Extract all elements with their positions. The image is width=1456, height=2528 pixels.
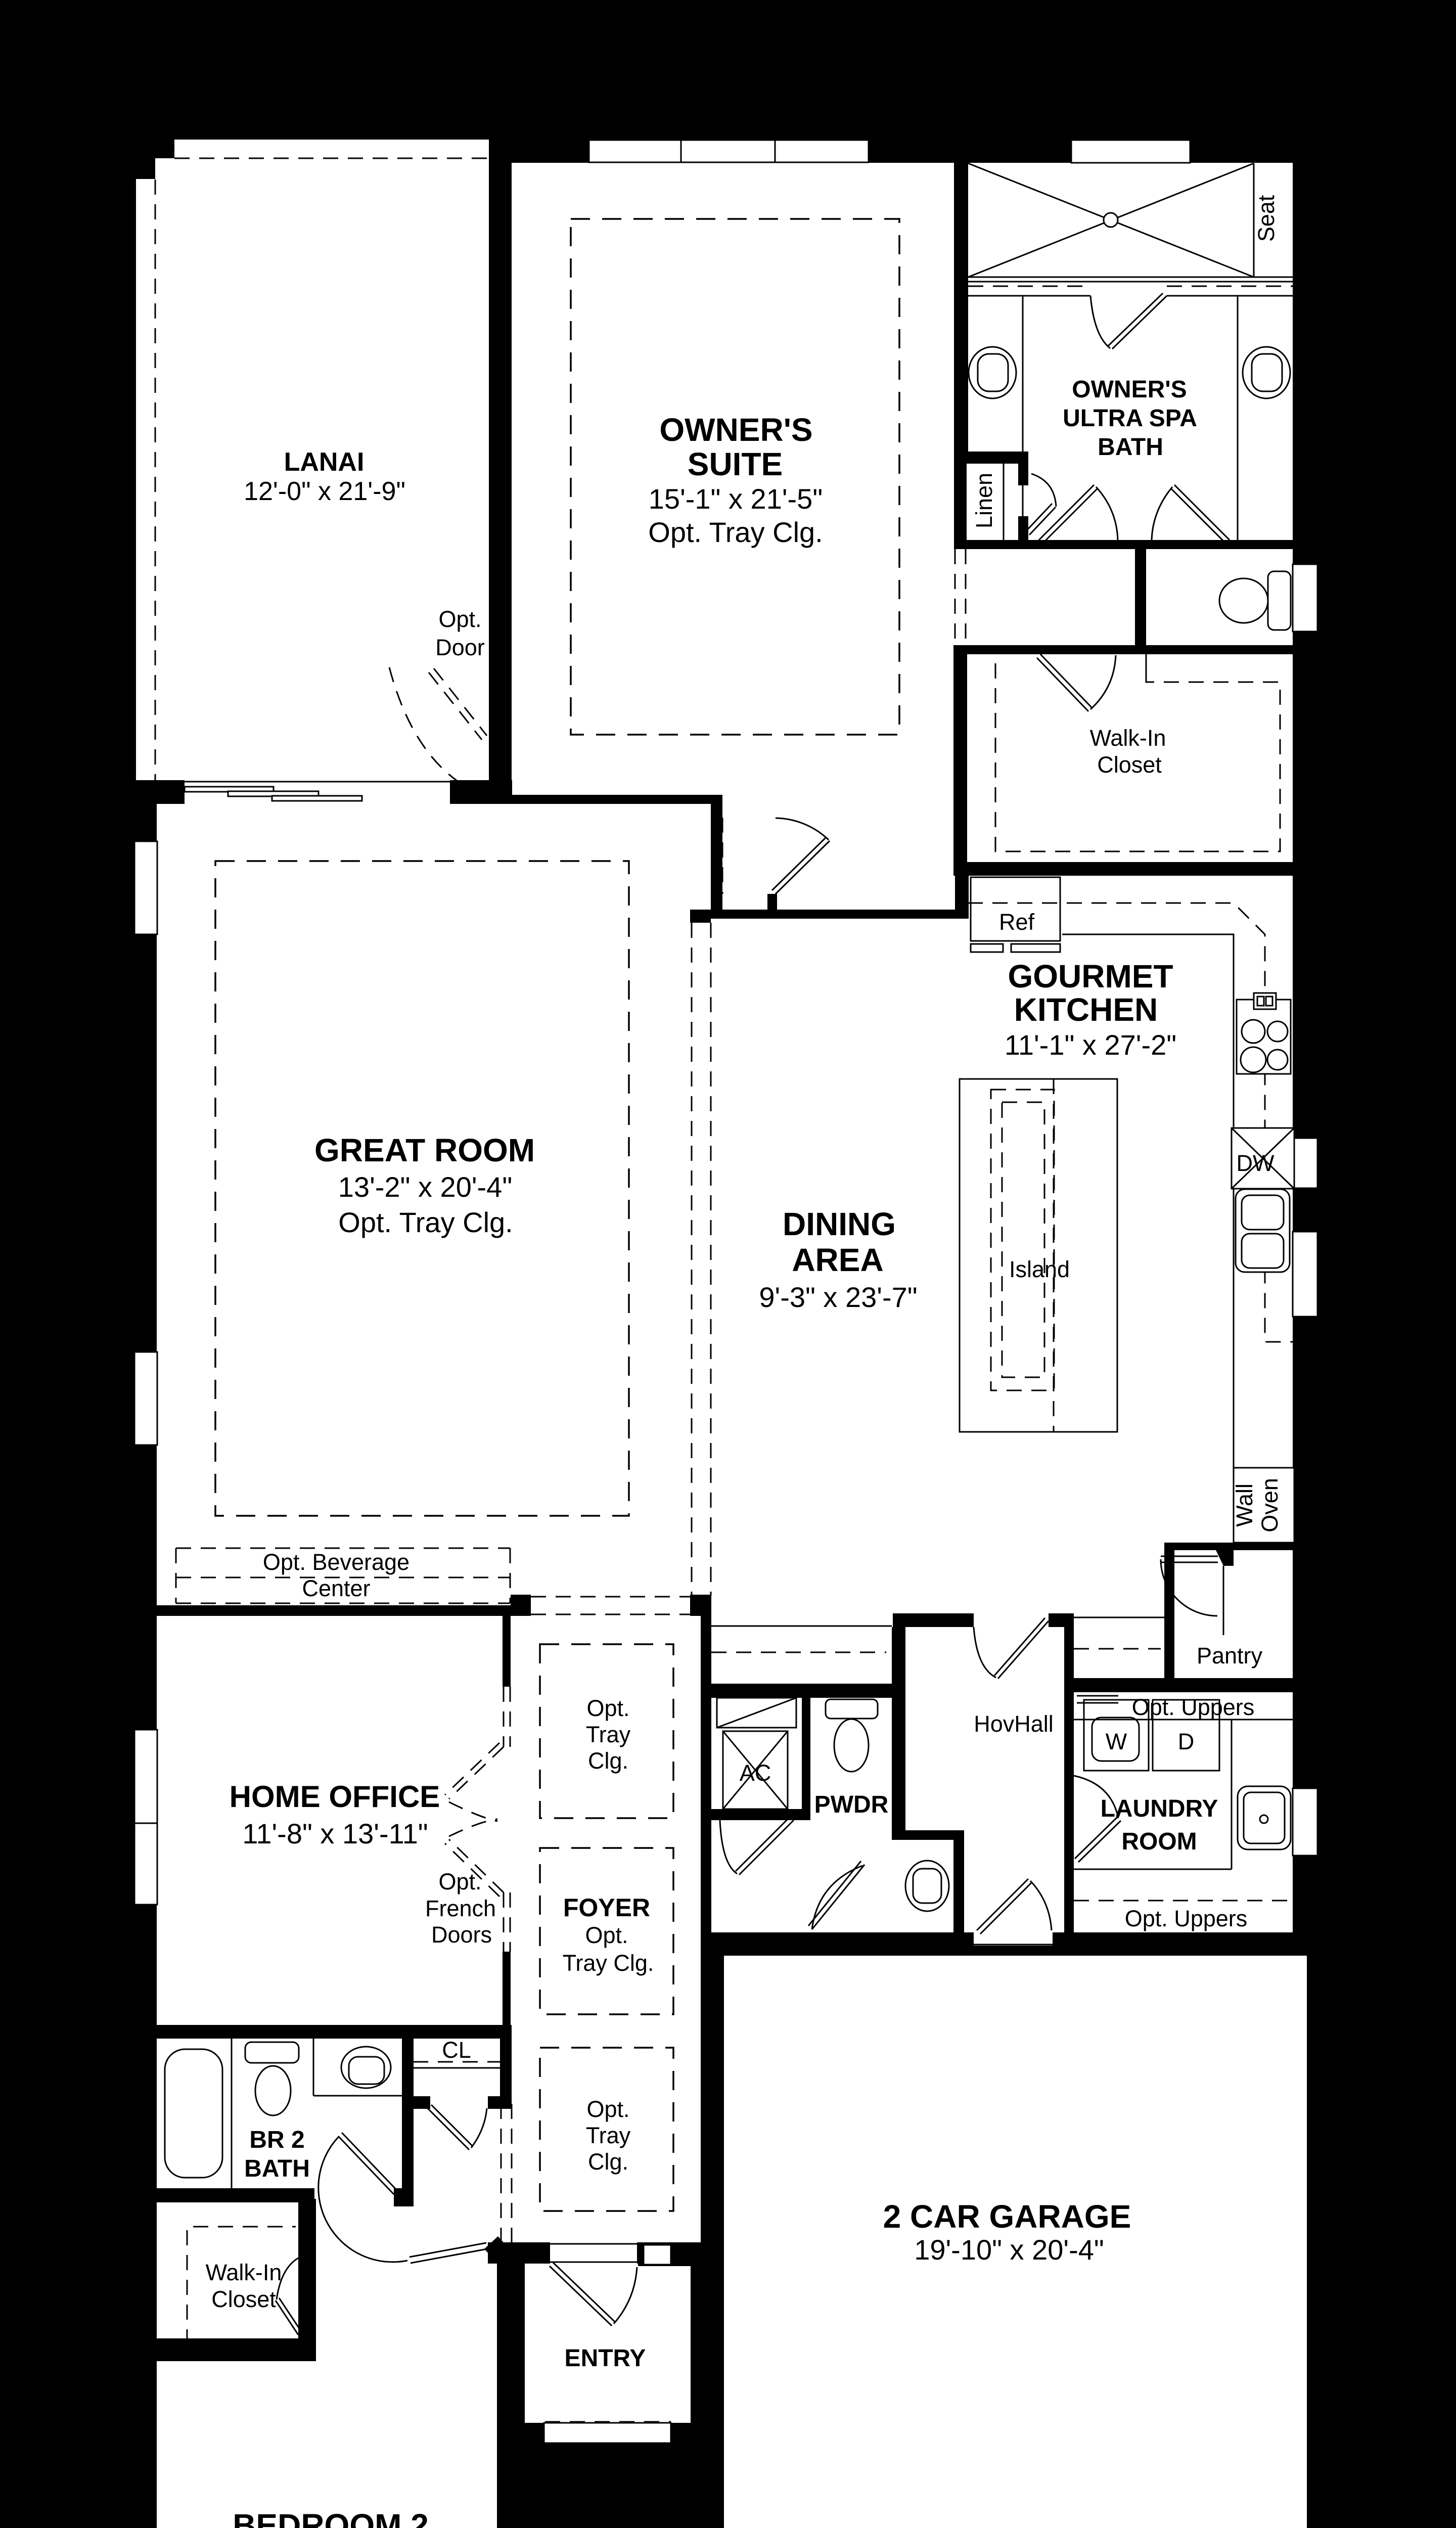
svg-text:9'-3" x 23'-7": 9'-3" x 23'-7" bbox=[759, 1281, 917, 1313]
svg-text:HovHall: HovHall bbox=[974, 1711, 1054, 1737]
svg-text:Island: Island bbox=[1009, 1256, 1070, 1282]
svg-text:Opt. Tray Clg.: Opt. Tray Clg. bbox=[338, 1206, 513, 1238]
svg-text:Linen: Linen bbox=[971, 473, 997, 528]
svg-text:Clg.: Clg. bbox=[588, 2149, 628, 2175]
svg-text:HOME OFFICE: HOME OFFICE bbox=[230, 1780, 440, 1814]
svg-text:Center: Center bbox=[302, 1575, 370, 1601]
svg-text:BEDROOM 2: BEDROOM 2 bbox=[233, 2507, 429, 2528]
svg-text:Tray: Tray bbox=[586, 1722, 631, 1747]
svg-text:Oven: Oven bbox=[1257, 1478, 1283, 1532]
svg-text:Tray Clg.: Tray Clg. bbox=[563, 1950, 654, 1976]
svg-text:Closet: Closet bbox=[211, 2286, 276, 2312]
svg-text:LAUNDRY: LAUNDRY bbox=[1101, 1795, 1218, 1822]
svg-text:19'-10" x 20'-4": 19'-10" x 20'-4" bbox=[914, 2234, 1104, 2266]
svg-text:French: French bbox=[425, 1895, 496, 1921]
svg-text:Walk-In: Walk-In bbox=[206, 2260, 282, 2285]
svg-text:OWNER'S: OWNER'S bbox=[659, 412, 812, 448]
svg-text:Opt.: Opt. bbox=[438, 606, 481, 632]
svg-text:AC: AC bbox=[740, 1760, 771, 1786]
svg-text:15'-1" x 21'-5": 15'-1" x 21'-5" bbox=[649, 483, 823, 515]
svg-text:ROOM: ROOM bbox=[1121, 1828, 1197, 1855]
svg-text:GREAT ROOM: GREAT ROOM bbox=[314, 1132, 535, 1168]
svg-text:Opt. Uppers: Opt. Uppers bbox=[1132, 1694, 1255, 1720]
svg-text:FOYER: FOYER bbox=[563, 1893, 650, 1922]
svg-text:Opt.: Opt. bbox=[438, 1869, 481, 1894]
svg-text:D: D bbox=[1178, 1729, 1195, 1754]
svg-text:BATH: BATH bbox=[1098, 434, 1163, 461]
svg-text:ULTRA SPA: ULTRA SPA bbox=[1063, 405, 1197, 432]
svg-text:Opt. Uppers: Opt. Uppers bbox=[1125, 1906, 1248, 1931]
svg-text:11'-8" x 13'-11": 11'-8" x 13'-11" bbox=[242, 1818, 428, 1849]
svg-text:Opt.: Opt. bbox=[586, 1695, 629, 1721]
svg-text:12'-0" x 21'-9": 12'-0" x 21'-9" bbox=[244, 477, 405, 506]
svg-text:OWNER'S: OWNER'S bbox=[1072, 376, 1187, 403]
svg-text:AREA: AREA bbox=[792, 1242, 883, 1278]
svg-text:PWDR: PWDR bbox=[814, 1791, 889, 1818]
svg-text:2 CAR GARAGE: 2 CAR GARAGE bbox=[883, 2198, 1131, 2235]
svg-text:CL: CL bbox=[442, 2037, 471, 2063]
svg-text:GOURMET: GOURMET bbox=[1008, 958, 1173, 995]
svg-text:DW: DW bbox=[1237, 1150, 1275, 1176]
svg-text:Walk-In: Walk-In bbox=[1090, 725, 1166, 751]
svg-text:11'-1" x 27'-2": 11'-1" x 27'-2" bbox=[1005, 1029, 1176, 1061]
svg-text:Opt. Tray Clg.: Opt. Tray Clg. bbox=[648, 516, 823, 548]
svg-text:13'-2" x 20'-4": 13'-2" x 20'-4" bbox=[338, 1171, 512, 1203]
svg-text:LANAI: LANAI bbox=[284, 447, 365, 477]
svg-text:ENTRY: ENTRY bbox=[565, 2345, 646, 2372]
svg-text:BATH: BATH bbox=[244, 2155, 310, 2182]
svg-text:Opt.: Opt. bbox=[585, 1922, 628, 1948]
svg-text:Tray: Tray bbox=[586, 2123, 631, 2148]
svg-text:DINING: DINING bbox=[783, 1206, 896, 1242]
svg-text:Wall: Wall bbox=[1232, 1483, 1257, 1527]
svg-text:KITCHEN: KITCHEN bbox=[1014, 991, 1158, 1028]
svg-text:SUITE: SUITE bbox=[688, 446, 783, 482]
svg-text:BR 2: BR 2 bbox=[249, 2127, 304, 2153]
svg-text:Door: Door bbox=[435, 635, 485, 660]
svg-text:W: W bbox=[1106, 1729, 1127, 1754]
svg-text:Seat: Seat bbox=[1253, 195, 1279, 242]
svg-text:Doors: Doors bbox=[431, 1922, 492, 1948]
svg-text:Pantry: Pantry bbox=[1197, 1643, 1263, 1668]
svg-text:Opt. Beverage: Opt. Beverage bbox=[263, 1549, 409, 1575]
svg-text:Opt.: Opt. bbox=[586, 2096, 629, 2122]
svg-text:Closet: Closet bbox=[1097, 752, 1162, 778]
svg-text:Clg.: Clg. bbox=[588, 1748, 628, 1774]
svg-text:Ref: Ref bbox=[999, 909, 1035, 935]
